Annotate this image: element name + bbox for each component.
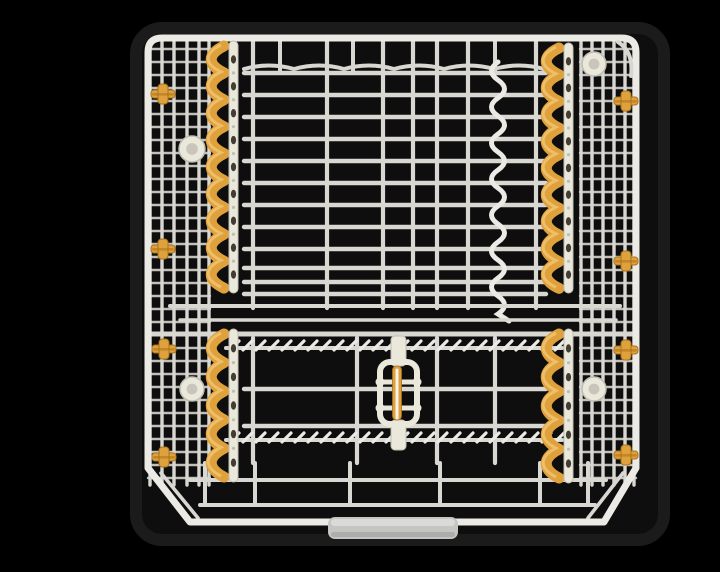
spine-hole (566, 459, 571, 467)
spine-rivet (232, 418, 235, 421)
spine-hole (231, 55, 236, 63)
spine-hole (566, 270, 571, 278)
side-roller-hub (187, 384, 198, 395)
spine-hole (231, 163, 236, 171)
spine-hole (566, 373, 571, 381)
latch-lug (413, 378, 422, 387)
spine-rivet (232, 125, 235, 128)
side-roller-hub (589, 59, 600, 70)
spine-hole (566, 344, 571, 352)
spine-hole (231, 344, 236, 352)
product-photo-dishwasher-rack (40, 16, 720, 556)
spine-hole (231, 136, 236, 144)
spine-hole (231, 401, 236, 409)
adjuster-clip-shadow (615, 260, 637, 263)
spine-hole (231, 459, 236, 467)
spine-hole (231, 430, 236, 438)
spine-hole (566, 57, 571, 65)
spine-rivet (567, 390, 570, 393)
spine-hole (566, 217, 571, 225)
adjuster-clip-shadow (152, 248, 174, 251)
spine-rivet (567, 206, 570, 209)
spine-rivet (567, 448, 570, 451)
spine-hole (566, 84, 571, 92)
spine-hole (231, 190, 236, 198)
spine-hole (566, 164, 571, 172)
spine-hole (566, 190, 571, 198)
spine-rivet (567, 180, 570, 183)
spine-hole (231, 217, 236, 225)
spine-rivet (567, 419, 570, 422)
spine-rivet (232, 179, 235, 182)
latch-lug (376, 378, 385, 387)
spine-rivet (232, 98, 235, 101)
spine-hole (566, 244, 571, 252)
spine-hole (231, 243, 236, 251)
side-roller-hub (186, 143, 198, 155)
adjuster-clip-shadow (615, 100, 637, 103)
latch-lug (413, 404, 422, 413)
spine-rivet (567, 126, 570, 129)
front-handle-shade (331, 532, 455, 537)
spine-rivet (567, 153, 570, 156)
spine-hole (231, 270, 236, 278)
spine-rivet (232, 260, 235, 263)
rack-photo-svg (40, 16, 720, 556)
side-roller-hub (589, 384, 600, 395)
spine-hole (566, 402, 571, 410)
spine-hole (566, 137, 571, 145)
spine-rivet (567, 361, 570, 364)
spine-hole (231, 109, 236, 117)
spine-rivet (232, 71, 235, 74)
spine-rivet (232, 361, 235, 364)
adjuster-clip-shadow (153, 456, 175, 459)
spine-rivet (567, 100, 570, 103)
spine-rivet (232, 233, 235, 236)
adjuster-clip-shadow (615, 349, 637, 352)
spine-hole (566, 431, 571, 439)
latch-lug (376, 404, 385, 413)
spine-rivet (232, 447, 235, 450)
adjuster-clip-shadow (152, 93, 174, 96)
spine-rivet (567, 73, 570, 76)
spine-hole (231, 82, 236, 90)
adjuster-clip-shadow (615, 454, 637, 457)
spine-rivet (567, 233, 570, 236)
spine-rivet (232, 206, 235, 209)
spine-hole (566, 110, 571, 118)
adjuster-clip-shadow (153, 348, 175, 351)
spine-rivet (232, 152, 235, 155)
spine-hole (231, 373, 236, 381)
spine-rivet (232, 390, 235, 393)
front-handle-highlight (331, 519, 455, 526)
spine-rivet (567, 260, 570, 263)
